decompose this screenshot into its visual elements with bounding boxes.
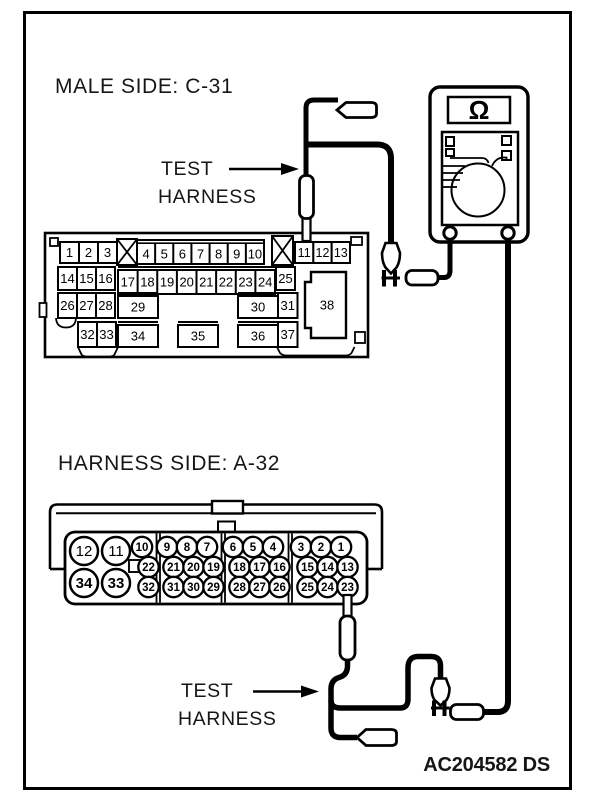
male-side-title: MALE SIDE: C-31 [55,75,233,99]
svg-text:3: 3 [104,245,111,260]
svg-text:18: 18 [140,275,154,290]
svg-text:15: 15 [301,562,314,574]
svg-text:12: 12 [76,543,93,560]
svg-text:6: 6 [179,246,186,261]
svg-text:12: 12 [316,246,330,260]
svg-text:20: 20 [179,275,193,290]
svg-text:36: 36 [251,329,265,344]
svg-text:5: 5 [250,542,257,554]
svg-text:31: 31 [281,298,295,313]
svg-text:19: 19 [207,562,220,574]
svg-text:27: 27 [79,298,93,313]
svg-text:38: 38 [320,298,334,313]
svg-text:35: 35 [191,329,205,344]
test-harness-label-bottom-line2: HARNESS [178,708,276,731]
svg-text:5: 5 [161,246,168,261]
svg-text:28: 28 [98,298,112,313]
svg-text:31: 31 [167,582,180,594]
svg-text:16: 16 [98,271,112,286]
svg-text:37: 37 [281,327,295,342]
svg-text:17: 17 [121,275,135,290]
svg-text:13: 13 [334,246,348,260]
test-harness-label-top-line1: TEST [161,158,213,181]
svg-text:19: 19 [160,275,174,290]
svg-text:21: 21 [167,562,180,574]
svg-text:17: 17 [253,562,266,574]
svg-text:9: 9 [233,246,240,261]
svg-text:25: 25 [301,582,314,594]
connector-c31-svg: 1234567891011121314151617181920212223242… [43,230,377,364]
svg-text:11: 11 [108,543,124,560]
svg-text:9: 9 [164,542,170,554]
svg-text:4: 4 [142,246,149,261]
svg-text:18: 18 [233,562,246,574]
svg-text:2: 2 [85,245,92,260]
svg-text:20: 20 [187,562,200,574]
multimeter-body: Ω [430,87,528,242]
svg-text:7: 7 [204,542,210,554]
svg-text:1: 1 [66,245,73,260]
svg-text:11: 11 [298,246,311,260]
svg-text:2: 2 [318,542,324,554]
svg-text:7: 7 [197,246,204,261]
svg-text:34: 34 [76,575,93,592]
multimeter-svg: Ω [425,80,535,250]
svg-text:33: 33 [99,327,113,342]
svg-text:8: 8 [184,542,191,554]
svg-text:24: 24 [258,275,272,290]
test-harness-label-bottom-line1: TEST [181,680,233,703]
svg-text:8: 8 [215,246,222,261]
harness-side-title: HARNESS SIDE: A-32 [58,452,280,476]
connector-a32-svg: 1211343310987654321222120191817161514133… [45,498,390,613]
svg-text:15: 15 [79,271,93,286]
svg-text:28: 28 [233,582,246,594]
terminal-right [502,227,514,239]
svg-text:4: 4 [270,542,277,554]
svg-text:29: 29 [131,300,145,315]
svg-text:23: 23 [341,582,354,594]
svg-text:24: 24 [321,582,334,594]
svg-text:23: 23 [238,275,252,290]
svg-text:26: 26 [60,298,74,313]
figure-code: AC204582 DS [418,754,550,777]
svg-text:22: 22 [219,275,233,290]
svg-text:3: 3 [298,542,304,554]
svg-text:13: 13 [341,562,354,574]
svg-text:25: 25 [278,271,292,286]
manual-figure-page: { "labels": { "male_side_title": "MALE S… [0,0,608,812]
svg-text:27: 27 [253,582,266,594]
svg-text:29: 29 [207,582,220,594]
svg-text:10: 10 [248,246,262,261]
terminal-left [444,227,456,239]
svg-text:26: 26 [273,582,286,594]
svg-text:33: 33 [108,575,125,592]
svg-text:22: 22 [142,562,155,574]
svg-text:32: 32 [142,582,155,594]
svg-text:21: 21 [199,275,213,290]
selector-dial [452,164,505,217]
ohm-symbol: Ω [469,95,490,125]
svg-text:1: 1 [338,542,345,554]
svg-text:30: 30 [187,582,200,594]
svg-text:6: 6 [230,542,236,554]
svg-text:30: 30 [251,300,265,315]
test-harness-label-top-line2: HARNESS [158,186,256,209]
svg-text:34: 34 [131,329,145,344]
svg-text:14: 14 [321,562,334,574]
svg-text:32: 32 [80,327,94,342]
svg-text:10: 10 [136,542,149,554]
svg-text:14: 14 [60,271,74,286]
svg-text:16: 16 [273,562,286,574]
